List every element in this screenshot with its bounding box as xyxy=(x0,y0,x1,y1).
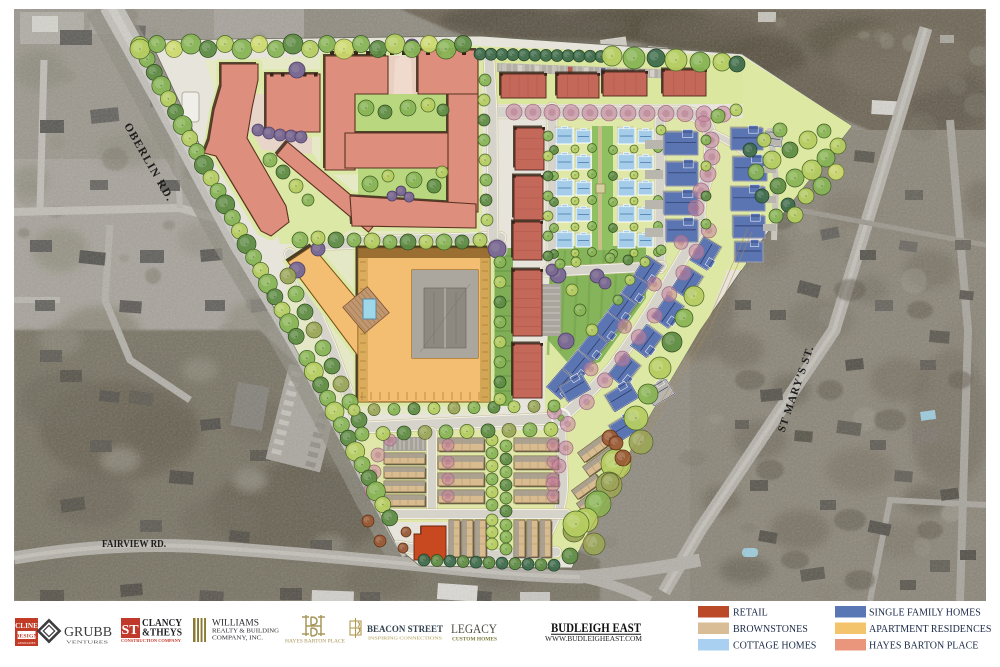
svg-text:HAYES BARTON PLACE: HAYES BARTON PLACE xyxy=(285,639,346,645)
svg-text:INSPIRING CONNECTIONS: INSPIRING CONNECTIONS xyxy=(368,636,443,641)
svg-text:GRUBB: GRUBB xyxy=(64,625,112,640)
svg-text:COMPANY, INC.: COMPANY, INC. xyxy=(212,635,263,642)
svg-text:BROWNSTONES: BROWNSTONES xyxy=(733,624,808,635)
svg-text:ST: ST xyxy=(121,623,139,638)
svg-text:BEACON STREET: BEACON STREET xyxy=(367,624,443,634)
svg-text:DESIGN: DESIGN xyxy=(15,634,38,640)
svg-text:FAIRVIEW RD.: FAIRVIEW RD. xyxy=(102,538,166,550)
svg-text:RETAIL: RETAIL xyxy=(733,608,768,619)
svg-text:BUDLEIGH EAST: BUDLEIGH EAST xyxy=(551,620,641,635)
svg-text:LEGACY: LEGACY xyxy=(451,621,498,636)
svg-text:CUSTOM HOMES: CUSTOM HOMES xyxy=(452,637,497,643)
svg-text:SINGLE FAMILY HOMES: SINGLE FAMILY HOMES xyxy=(869,608,981,619)
svg-text:APARTMENT RESIDENCES: APARTMENT RESIDENCES xyxy=(869,624,991,635)
svg-text:CLINE: CLINE xyxy=(15,622,38,630)
svg-text:REALTY & BUILDING: REALTY & BUILDING xyxy=(212,628,279,635)
svg-text:COTTAGE HOMES: COTTAGE HOMES xyxy=(733,641,816,652)
svg-text:HAYES BARTON PLACE: HAYES BARTON PLACE xyxy=(869,641,978,652)
svg-text:CONSTRUCTION COMPANY: CONSTRUCTION COMPANY xyxy=(121,638,182,643)
svg-text:WWW.BUDLEIGHEAST.COM: WWW.BUDLEIGHEAST.COM xyxy=(545,636,642,643)
svg-text:VENTURES: VENTURES xyxy=(66,640,109,645)
svg-text:ASSOCIATES: ASSOCIATES xyxy=(18,641,36,645)
